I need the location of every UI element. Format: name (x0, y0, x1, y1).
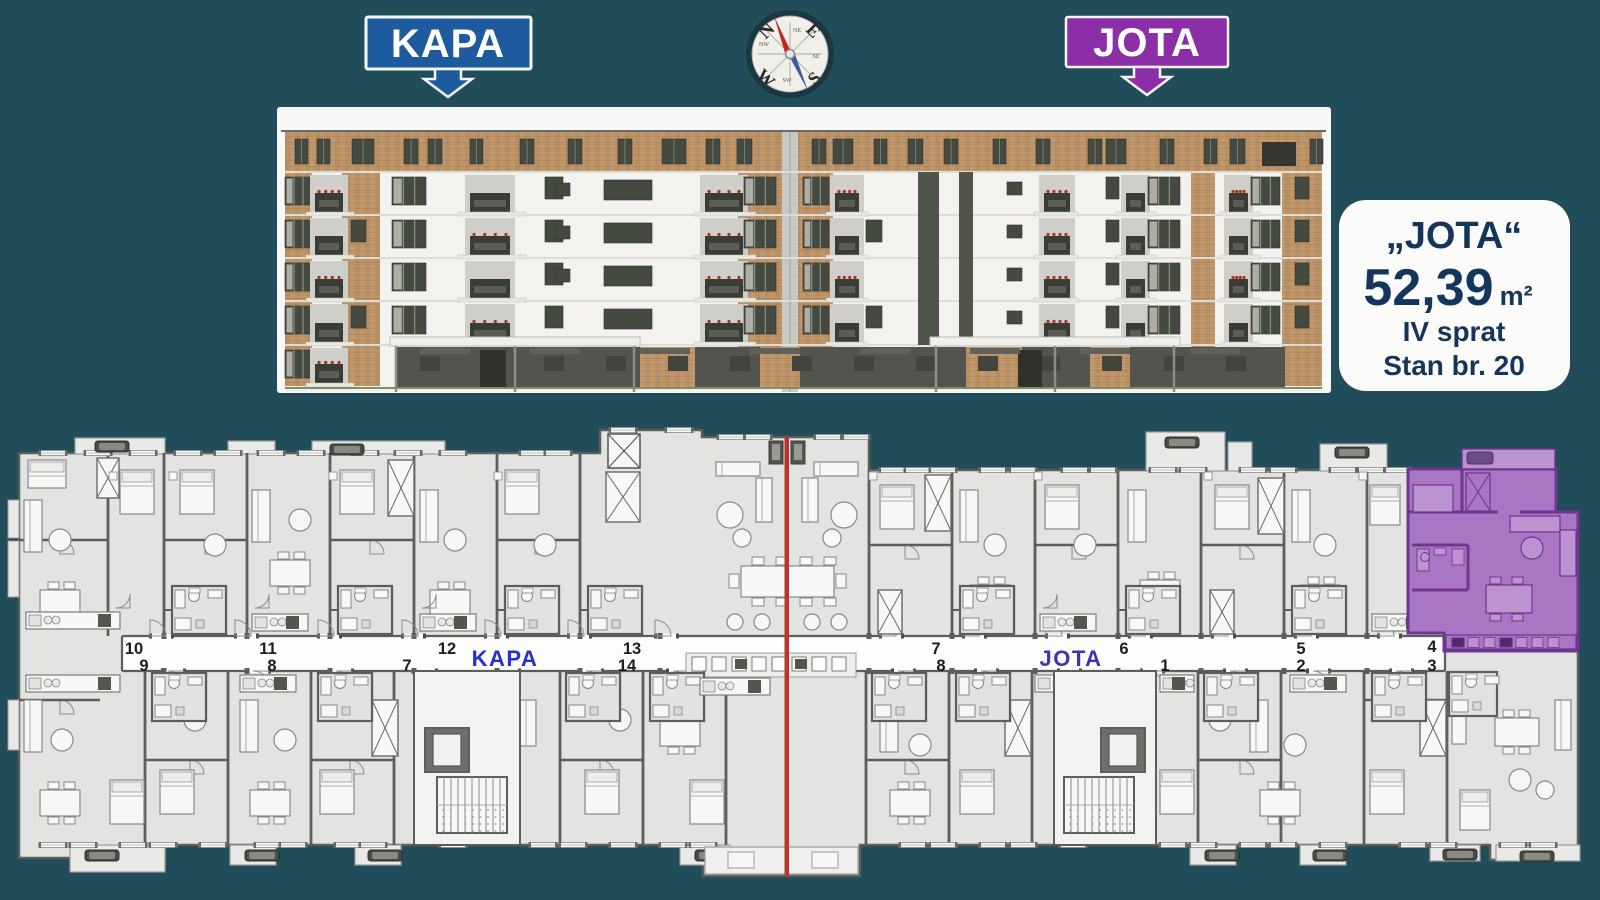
svg-text:6: 6 (1119, 640, 1128, 658)
svg-text:4: 4 (1427, 638, 1437, 656)
svg-text:IV sprat: IV sprat (1403, 316, 1506, 347)
svg-text:JOTA: JOTA (1039, 646, 1102, 671)
svg-text:11: 11 (259, 640, 276, 658)
svg-text:10: 10 (125, 640, 143, 658)
svg-text:8: 8 (936, 657, 945, 675)
svg-text:NE: NE (793, 28, 801, 34)
svg-text:KAPA: KAPA (391, 22, 505, 66)
svg-text:3: 3 (1427, 657, 1436, 675)
svg-text:7: 7 (931, 640, 940, 658)
svg-text:13: 13 (623, 640, 641, 658)
svg-text:NW: NW (759, 42, 769, 48)
svg-text:5: 5 (1296, 640, 1305, 658)
svg-text:„JOTA“: „JOTA“ (1386, 215, 1523, 257)
svg-text:JOTA: JOTA (1093, 21, 1201, 65)
svg-text:9: 9 (139, 657, 148, 675)
svg-text:1: 1 (1160, 657, 1169, 675)
svg-text:Stan br. 20: Stan br. 20 (1383, 350, 1525, 381)
svg-text:2: 2 (1296, 657, 1305, 675)
svg-text:SE: SE (812, 54, 819, 60)
svg-text:KAPA: KAPA (472, 646, 539, 671)
svg-text:SW: SW (783, 78, 792, 84)
svg-text:8: 8 (267, 657, 276, 675)
svg-text:12: 12 (438, 640, 456, 658)
svg-text:7: 7 (402, 657, 411, 675)
